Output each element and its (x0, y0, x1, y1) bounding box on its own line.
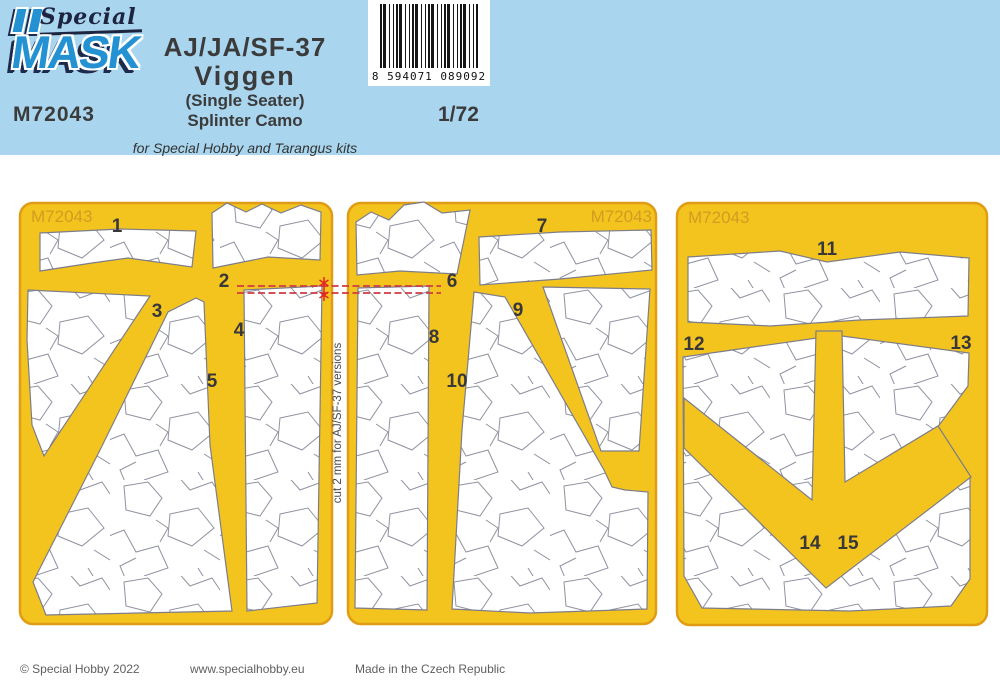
part-number: 2 (219, 271, 230, 292)
part-number: 10 (446, 371, 467, 392)
mask-sheet-3: M72043 11 12 13 14 15 (677, 203, 987, 625)
mask-sheet-1: M72043 1 2 3 4 5 (20, 203, 332, 624)
sheet-code: M72043 (31, 207, 92, 226)
part-number: 8 (429, 327, 440, 348)
part-number: 11 (817, 239, 838, 260)
sheet-code: M72043 (591, 207, 652, 226)
cut-note: cut 2 mm for AJ/SF-37 versions (332, 343, 344, 504)
product-card: Special MASK AJ/JA/SF-37 Viggen (Single … (0, 0, 1000, 683)
mask-cutout (355, 286, 429, 610)
copyright: © Special Hobby 2022 (20, 662, 140, 676)
part-number: 3 (152, 301, 163, 322)
part-number: 15 (837, 533, 859, 554)
mask-cutout (688, 251, 969, 326)
part-number: 9 (513, 300, 524, 321)
mask-cutout (244, 286, 322, 611)
mask-sheet-2: M72043 6 7 8 9 10 (348, 202, 656, 624)
part-number: 1 (112, 216, 123, 237)
part-number: 4 (234, 320, 245, 341)
part-number: 14 (799, 533, 821, 554)
sheet-code: M72043 (688, 208, 749, 227)
website: www.specialhobby.eu (190, 662, 305, 676)
part-number: 6 (447, 271, 458, 292)
mask-sheets: M72043 1 2 3 4 5 M72043 6 7 8 9 10 (0, 0, 1000, 683)
mask-cutout (356, 202, 470, 275)
part-number: 13 (950, 333, 971, 354)
part-number: 12 (683, 334, 704, 355)
part-number: 7 (537, 216, 548, 237)
made-in: Made in the Czech Republic (355, 662, 505, 676)
part-number: 5 (207, 371, 218, 392)
